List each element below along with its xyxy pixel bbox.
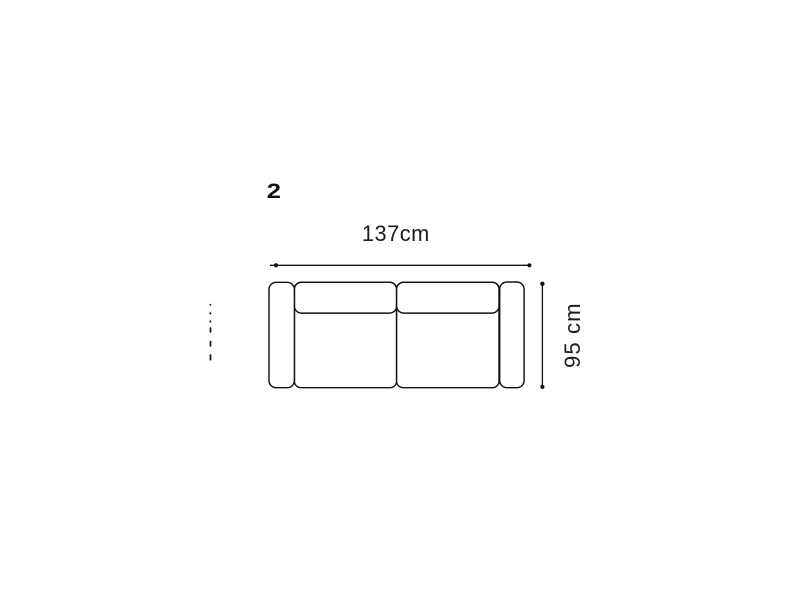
svg-text:137cm: 137cm: [362, 221, 430, 246]
svg-text:2: 2: [267, 180, 281, 204]
svg-text:95 cm: 95 cm: [560, 302, 585, 368]
